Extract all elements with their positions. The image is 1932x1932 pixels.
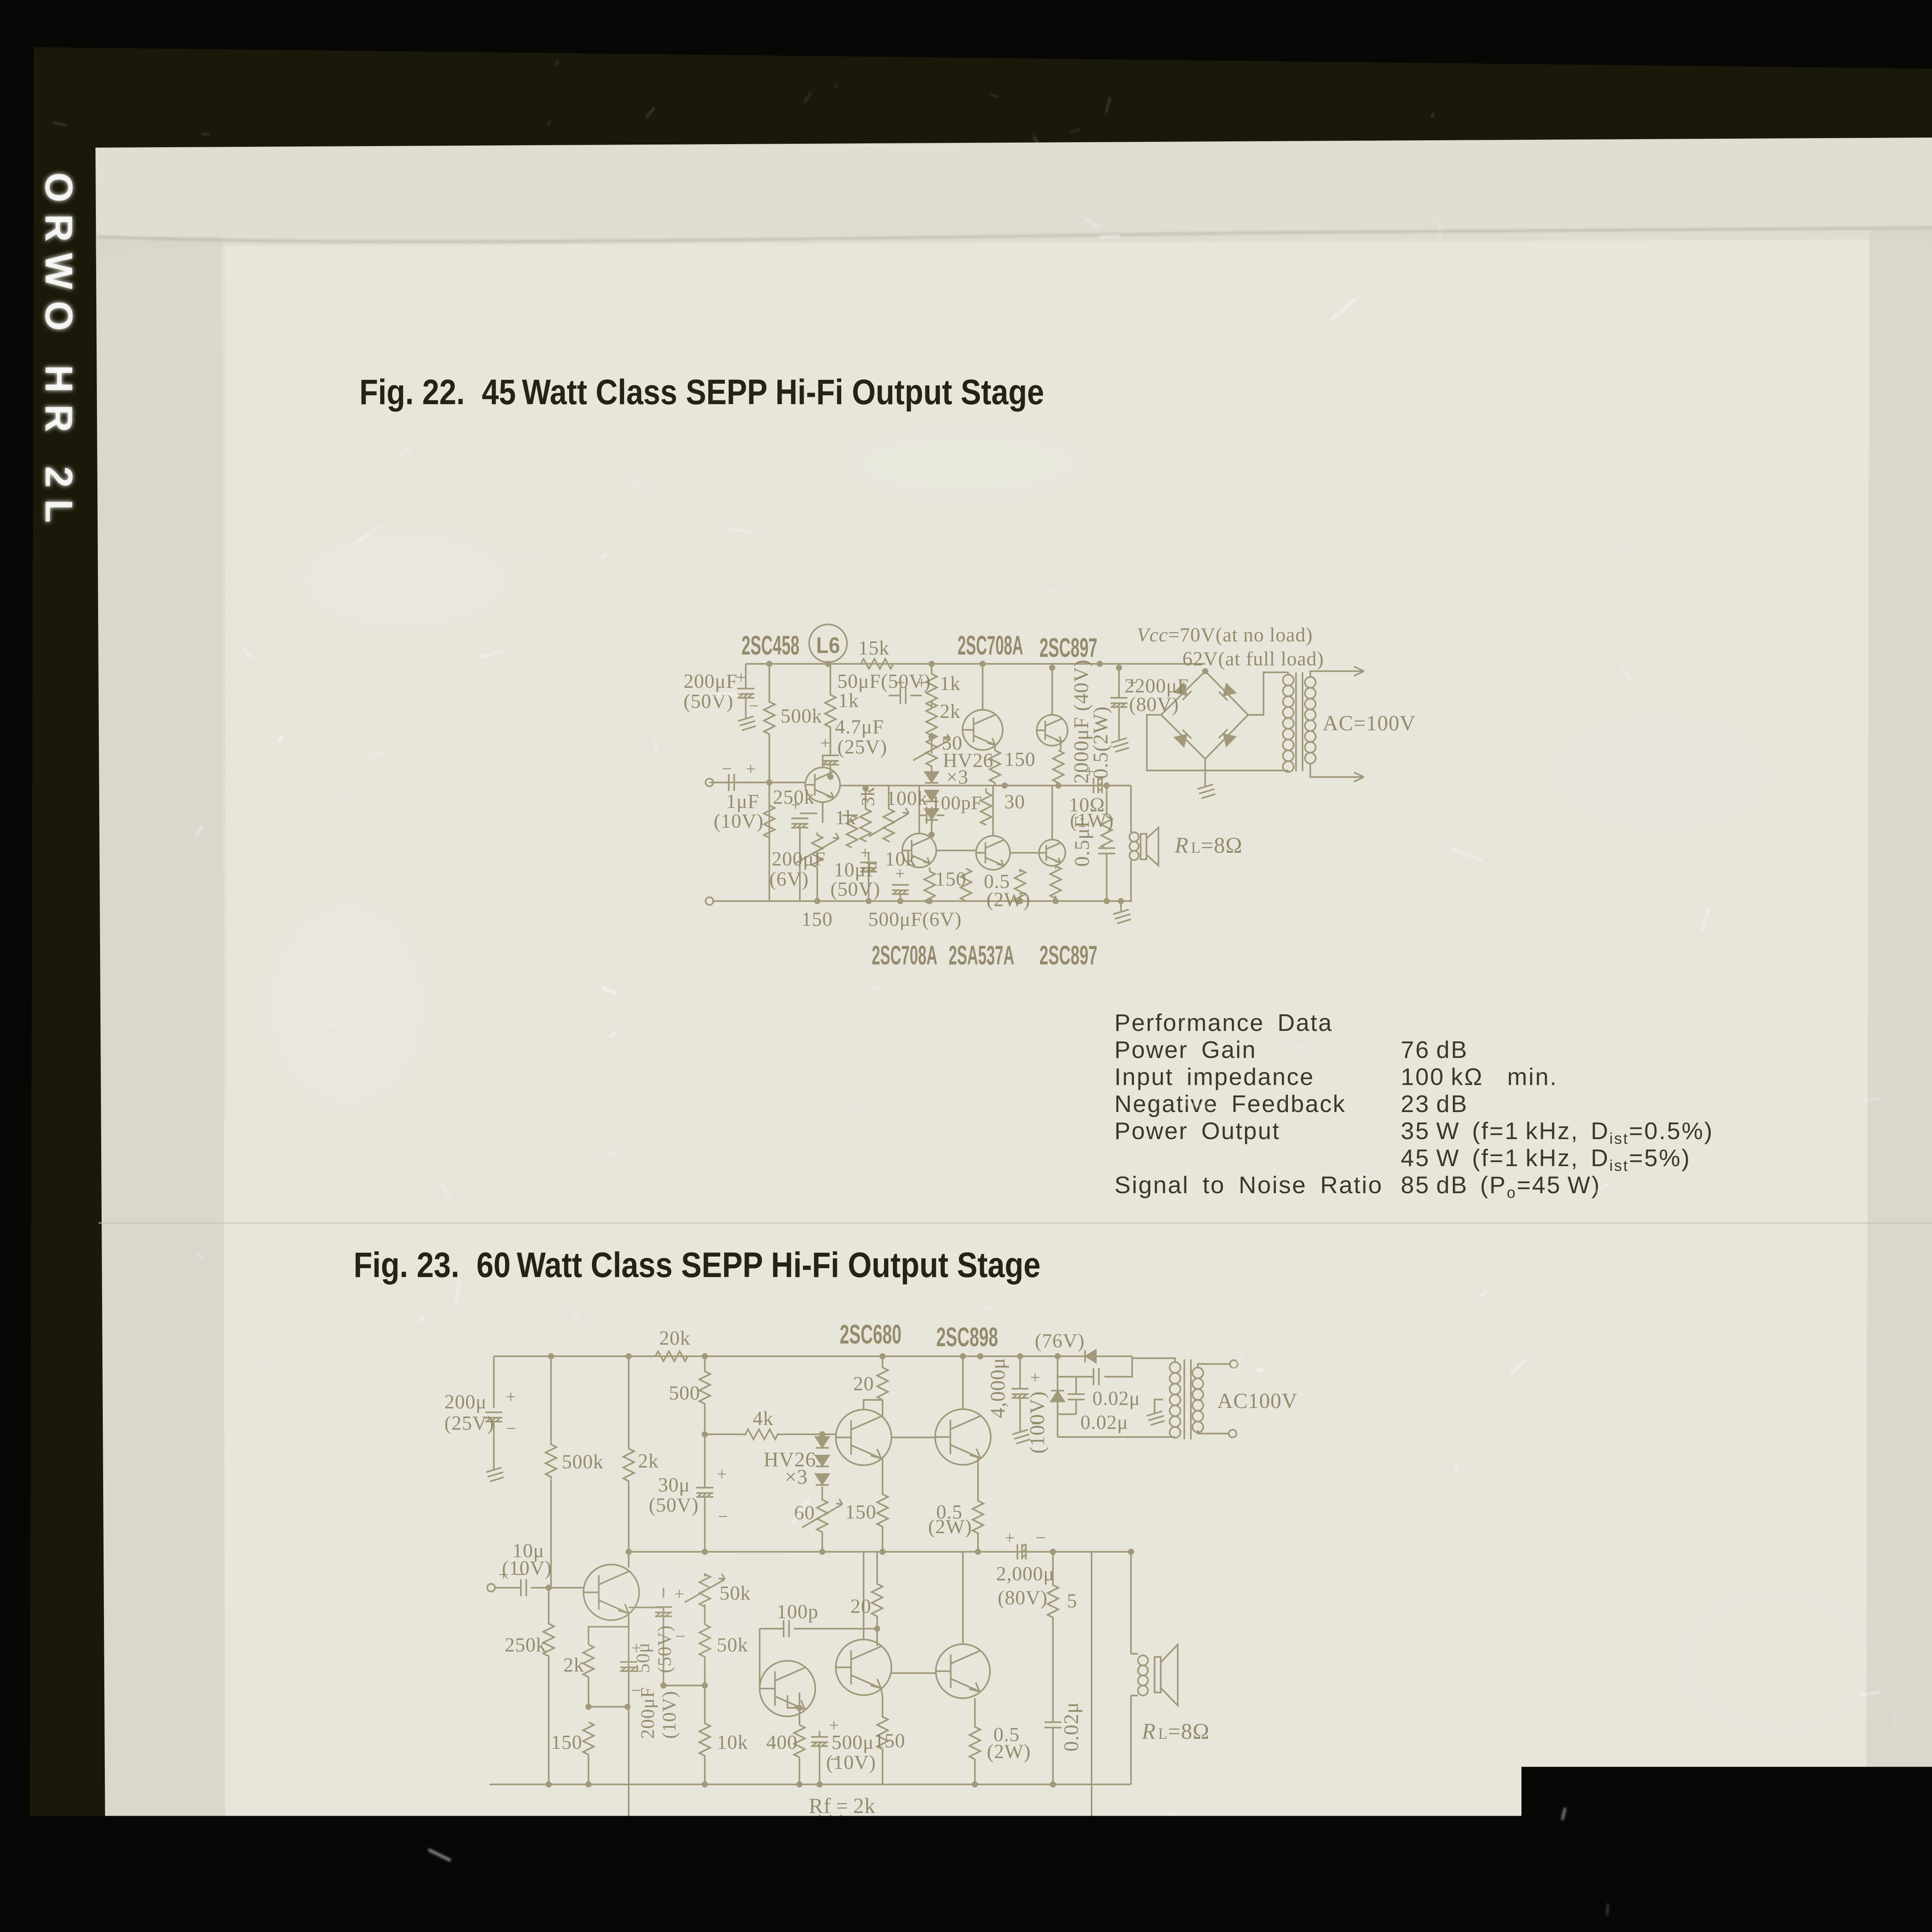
svg-text:(10V): (10V) [658, 1691, 680, 1739]
svg-text:2SC708A: 2SC708A [957, 630, 1023, 660]
svg-text:Rf = 2k: Rf = 2k [809, 1794, 876, 1818]
svg-text:1μF: 1μF [726, 791, 759, 813]
svg-text:1k: 1k [835, 807, 856, 829]
svg-text:150: 150 [551, 1731, 582, 1753]
svg-text:10μF: 10μF [834, 859, 878, 881]
svg-text:Negative Feedback: Negative Feedback [1114, 1091, 1346, 1117]
svg-text:2SA566: 2SA566 [846, 1886, 904, 1917]
svg-text:−: − [506, 1418, 516, 1438]
svg-text:45 W (f=1 kHz, Dist=5%): 45 W (f=1 kHz, Dist=5%) [1401, 1145, 1691, 1174]
svg-text:+: + [498, 1565, 509, 1584]
svg-text:−: − [749, 696, 759, 716]
svg-text:−: − [830, 1749, 840, 1769]
svg-text:2SC458: 2SC458 [535, 1886, 587, 1917]
svg-text:(10V): (10V) [502, 1557, 552, 1579]
svg-text:200μF: 200μF [772, 848, 826, 870]
svg-text:200μF: 200μF [684, 670, 738, 692]
svg-text:62V(at full load): 62V(at full load) [1182, 648, 1324, 670]
svg-text:100k: 100k [886, 787, 928, 810]
svg-text:2k: 2k [563, 1654, 584, 1676]
svg-text:0.02μ: 0.02μ [1092, 1388, 1140, 1410]
svg-text:0.5μF: 0.5μF [1070, 816, 1094, 867]
svg-text:(10V): (10V) [714, 810, 764, 832]
svg-text:100 p: 100 p [821, 1853, 867, 1875]
svg-text:500k: 500k [562, 1451, 604, 1473]
svg-text:3k: 3k [858, 787, 878, 806]
svg-text:Power Output: Power Output [1114, 1118, 1280, 1145]
svg-text:150: 150 [845, 1501, 876, 1523]
svg-text:−: − [895, 673, 905, 692]
svg-text:0.02μ: 0.02μ [1060, 1702, 1083, 1752]
svg-text:200μ: 200μ [444, 1391, 487, 1413]
svg-text:(50V): (50V) [830, 878, 880, 900]
svg-text:500: 500 [669, 1382, 700, 1404]
svg-text:Power Gain: Power Gain [1114, 1037, 1257, 1063]
svg-text:(80V): (80V) [1129, 694, 1179, 716]
svg-text:(50V): (50V) [649, 1494, 699, 1516]
svg-text:+: + [820, 733, 830, 753]
svg-text:+: + [1128, 673, 1138, 692]
svg-text:AC100V: AC100V [1217, 1389, 1298, 1413]
svg-text:+: + [1030, 1367, 1040, 1387]
svg-text:150: 150 [801, 908, 833, 930]
svg-text:4,000μ: 4,000μ [986, 1358, 1009, 1418]
svg-text:Vcc=70V(at no load): Vcc=70V(at no load) [1137, 624, 1313, 646]
svg-text:150: 150 [874, 1730, 905, 1752]
svg-text:−: − [515, 1565, 525, 1584]
svg-text:+: + [829, 1715, 839, 1735]
svg-text:20k: 20k [659, 1327, 690, 1349]
svg-text:150: 150 [935, 868, 966, 890]
svg-text:20: 20 [850, 1595, 871, 1617]
svg-text:(80V): (80V) [998, 1587, 1048, 1609]
svg-text:Input impedance: Input impedance [1114, 1064, 1314, 1090]
svg-text:×3: ×3 [946, 766, 968, 788]
svg-text:2SC897: 2SC897 [1039, 940, 1097, 970]
svg-text:100p: 100p [777, 1601, 818, 1623]
svg-text:+: + [506, 1387, 516, 1406]
svg-text:500μF(6V): 500μF(6V) [868, 908, 962, 930]
svg-text:250k: 250k [505, 1634, 546, 1656]
svg-text:(76V): (76V) [1035, 1330, 1085, 1352]
svg-text:30μ: 30μ [658, 1474, 690, 1496]
svg-text:+: + [717, 1464, 727, 1484]
svg-text:+: + [1084, 762, 1094, 781]
svg-text:5: 5 [1067, 1590, 1077, 1612]
svg-text:2SC708A: 2SC708A [872, 940, 937, 970]
svg-text:+: + [736, 667, 746, 687]
svg-text:100 kΩ min.: 100 kΩ min. [1401, 1064, 1558, 1090]
svg-text:R L=8Ω: R L=8Ω [1141, 1719, 1210, 1744]
svg-text:+: + [895, 864, 905, 883]
svg-text:(6V): (6V) [769, 868, 809, 890]
svg-text:1k: 1k [940, 673, 961, 695]
svg-text:30: 30 [1004, 791, 1025, 813]
svg-text:(25V): (25V) [444, 1412, 494, 1434]
svg-text:4k: 4k [753, 1408, 774, 1430]
svg-text:2,000μ: 2,000μ [996, 1563, 1054, 1585]
svg-text:2k: 2k [638, 1450, 659, 1472]
svg-text:(25V): (25V) [837, 736, 887, 758]
svg-text:+: + [1005, 1528, 1015, 1548]
svg-text:R L=8Ω: R L=8Ω [1174, 833, 1243, 858]
svg-text:+: + [917, 673, 927, 692]
svg-text:4.7μF: 4.7μF [835, 716, 884, 738]
svg-text:2SC898: 2SC898 [930, 1886, 988, 1917]
svg-text:−: − [1031, 1414, 1041, 1434]
svg-text:0.02μ: 0.02μ [1080, 1412, 1128, 1434]
svg-text:(2W): (2W) [986, 889, 1031, 911]
svg-text:×3: ×3 [785, 1465, 808, 1488]
svg-text:2SC708A: 2SC708A [757, 1886, 821, 1917]
svg-text:(2W): (2W) [987, 1741, 1031, 1763]
svg-text:150: 150 [1004, 748, 1036, 770]
svg-text:(2W): (2W) [928, 1516, 972, 1538]
svg-text:ORWO HR 2L: ORWO HR 2L [37, 172, 80, 534]
svg-text:400: 400 [766, 1731, 798, 1753]
svg-text:−: − [631, 1680, 641, 1700]
svg-text:L6: L6 [610, 1892, 631, 1913]
svg-text:AC=100V: AC=100V [1323, 711, 1416, 735]
svg-text:2SC897: 2SC897 [1039, 633, 1097, 663]
svg-text:35 W (f=1 kHz, Dist=0.5%): 35 W (f=1 kHz, Dist=0.5%) [1401, 1118, 1714, 1147]
svg-text:L6: L6 [816, 633, 840, 658]
svg-text:−: − [1036, 1528, 1046, 1548]
svg-text:500k: 500k [781, 705, 822, 727]
svg-text:15k: 15k [858, 637, 889, 659]
svg-text:2k: 2k [940, 701, 961, 723]
svg-text:10k: 10k [717, 1731, 748, 1753]
svg-text:+: + [860, 843, 870, 862]
svg-text:Fig. 22. 45 Watt Class SEPP H: Fig. 22. 45 Watt Class SEPP Hi-Fi Output… [359, 372, 1044, 412]
svg-text:20: 20 [853, 1373, 874, 1395]
svg-text:100pF: 100pF [931, 792, 982, 813]
svg-text:Fig. 23. 60 Watt Class SEPP H: Fig. 23. 60 Watt Class SEPP Hi-Fi Output… [354, 1245, 1041, 1285]
svg-text:−: − [722, 759, 732, 779]
svg-text:Performance Data: Performance Data [1114, 1010, 1333, 1036]
svg-text:1k: 1k [838, 690, 859, 712]
svg-text:Signal to Noise Ratio: Signal to Noise Ratio [1114, 1172, 1383, 1199]
svg-text:2SC680: 2SC680 [840, 1319, 901, 1349]
svg-text:+: + [791, 795, 801, 815]
svg-text:+: + [746, 759, 756, 779]
svg-text:76 dB: 76 dB [1401, 1037, 1468, 1063]
svg-text:2SA537A: 2SA537A [949, 940, 1014, 970]
svg-text:−: − [718, 1507, 728, 1526]
svg-text:2SC458: 2SC458 [742, 630, 799, 660]
svg-text:2SC898: 2SC898 [936, 1322, 998, 1352]
svg-text:85 dB (Po=45 W): 85 dB (Po=45 W) [1401, 1172, 1601, 1201]
svg-text:23 dB: 23 dB [1401, 1091, 1468, 1117]
